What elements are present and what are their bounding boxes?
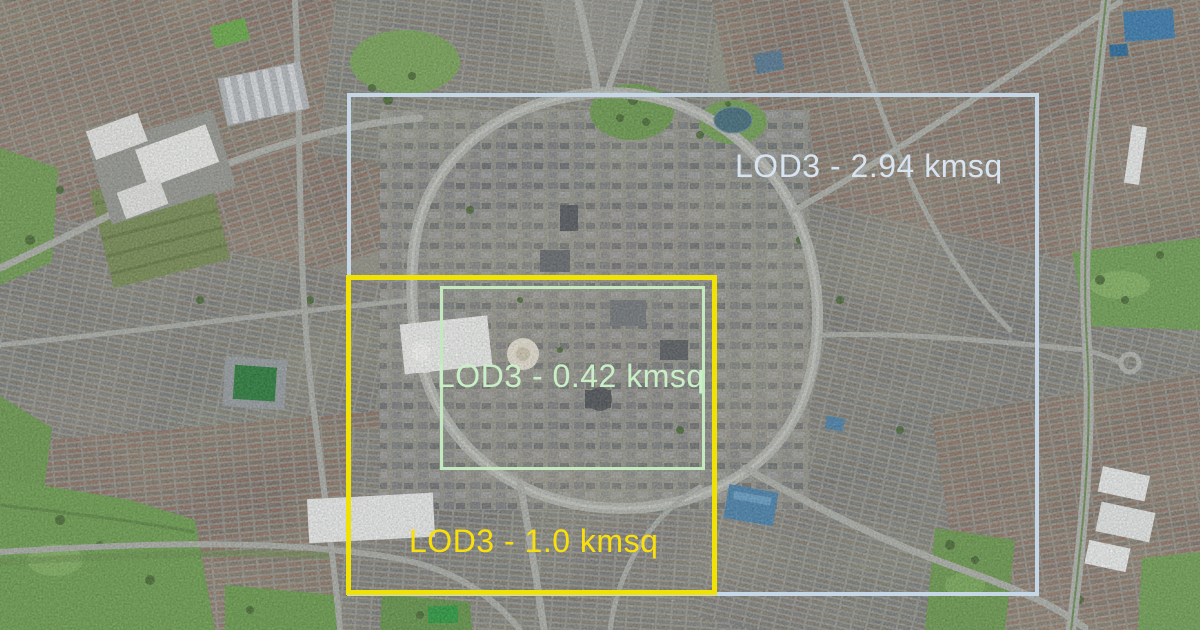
lod3-0-42-extent-outline: LOD3 - 0.42 kmsq — [440, 286, 705, 470]
lod3-2-94-extent-label: LOD3 - 2.94 kmsq — [735, 149, 1003, 184]
lod3-1-0-extent-label: LOD3 - 1.0 kmsq — [409, 524, 658, 559]
lod3-0-42-extent-label: LOD3 - 0.42 kmsq — [437, 359, 705, 394]
aerial-map-view: LOD3 - 2.94 kmsq LOD3 - 1.0 kmsq LOD3 - … — [0, 0, 1200, 630]
